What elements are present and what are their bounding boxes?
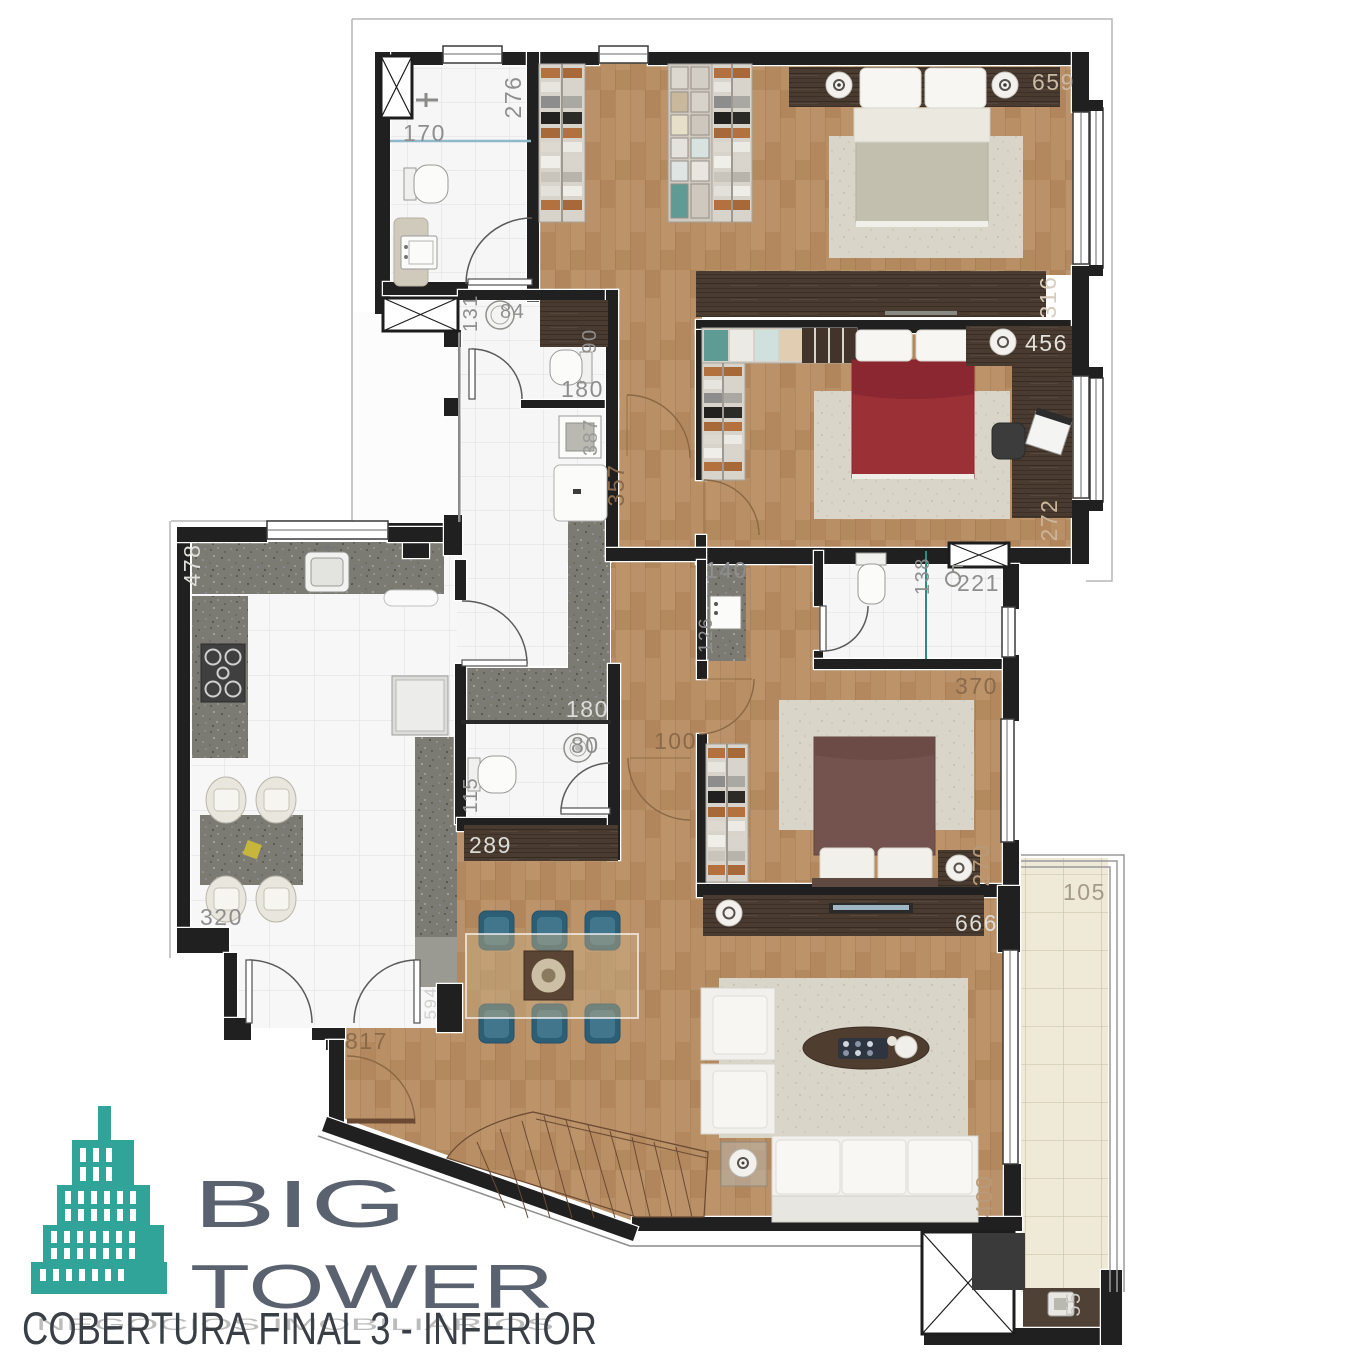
- svg-text:666: 666: [955, 910, 998, 936]
- svg-text:105: 105: [1063, 879, 1106, 905]
- svg-text:180: 180: [566, 696, 609, 722]
- svg-text:90: 90: [579, 328, 601, 353]
- svg-text:140: 140: [705, 557, 748, 583]
- svg-text:594: 594: [421, 987, 440, 1020]
- svg-text:456: 456: [1025, 330, 1068, 356]
- svg-text:80: 80: [571, 732, 600, 758]
- svg-text:100: 100: [654, 728, 697, 754]
- svg-text:357: 357: [603, 464, 629, 507]
- svg-text:138: 138: [912, 557, 934, 595]
- svg-text:180: 180: [561, 376, 604, 402]
- svg-text:115: 115: [460, 777, 482, 813]
- svg-text:289: 289: [469, 832, 512, 858]
- svg-text:BIG: BIG: [193, 1167, 407, 1242]
- svg-text:170: 170: [403, 120, 446, 146]
- svg-text:272: 272: [1036, 499, 1062, 542]
- svg-text:387: 387: [580, 418, 602, 456]
- svg-text:316: 316: [1035, 276, 1061, 319]
- svg-text:126: 126: [696, 617, 717, 653]
- svg-text:131: 131: [460, 294, 482, 332]
- svg-text:478: 478: [179, 544, 205, 587]
- svg-text:659: 659: [1032, 69, 1075, 95]
- svg-text:370: 370: [955, 673, 998, 699]
- svg-text:817: 817: [345, 1028, 388, 1054]
- svg-text:84: 84: [500, 301, 525, 323]
- svg-text:276: 276: [500, 76, 526, 119]
- svg-text:221: 221: [957, 570, 1000, 596]
- svg-text:320: 320: [200, 904, 243, 930]
- svg-text:55: 55: [1063, 1291, 1085, 1316]
- svg-text:COBERTURA FINAL 3 - INFERIOR: COBERTURA FINAL 3 - INFERIOR: [22, 1303, 597, 1354]
- svg-text:400: 400: [971, 1175, 997, 1218]
- svg-text:270: 270: [968, 844, 994, 887]
